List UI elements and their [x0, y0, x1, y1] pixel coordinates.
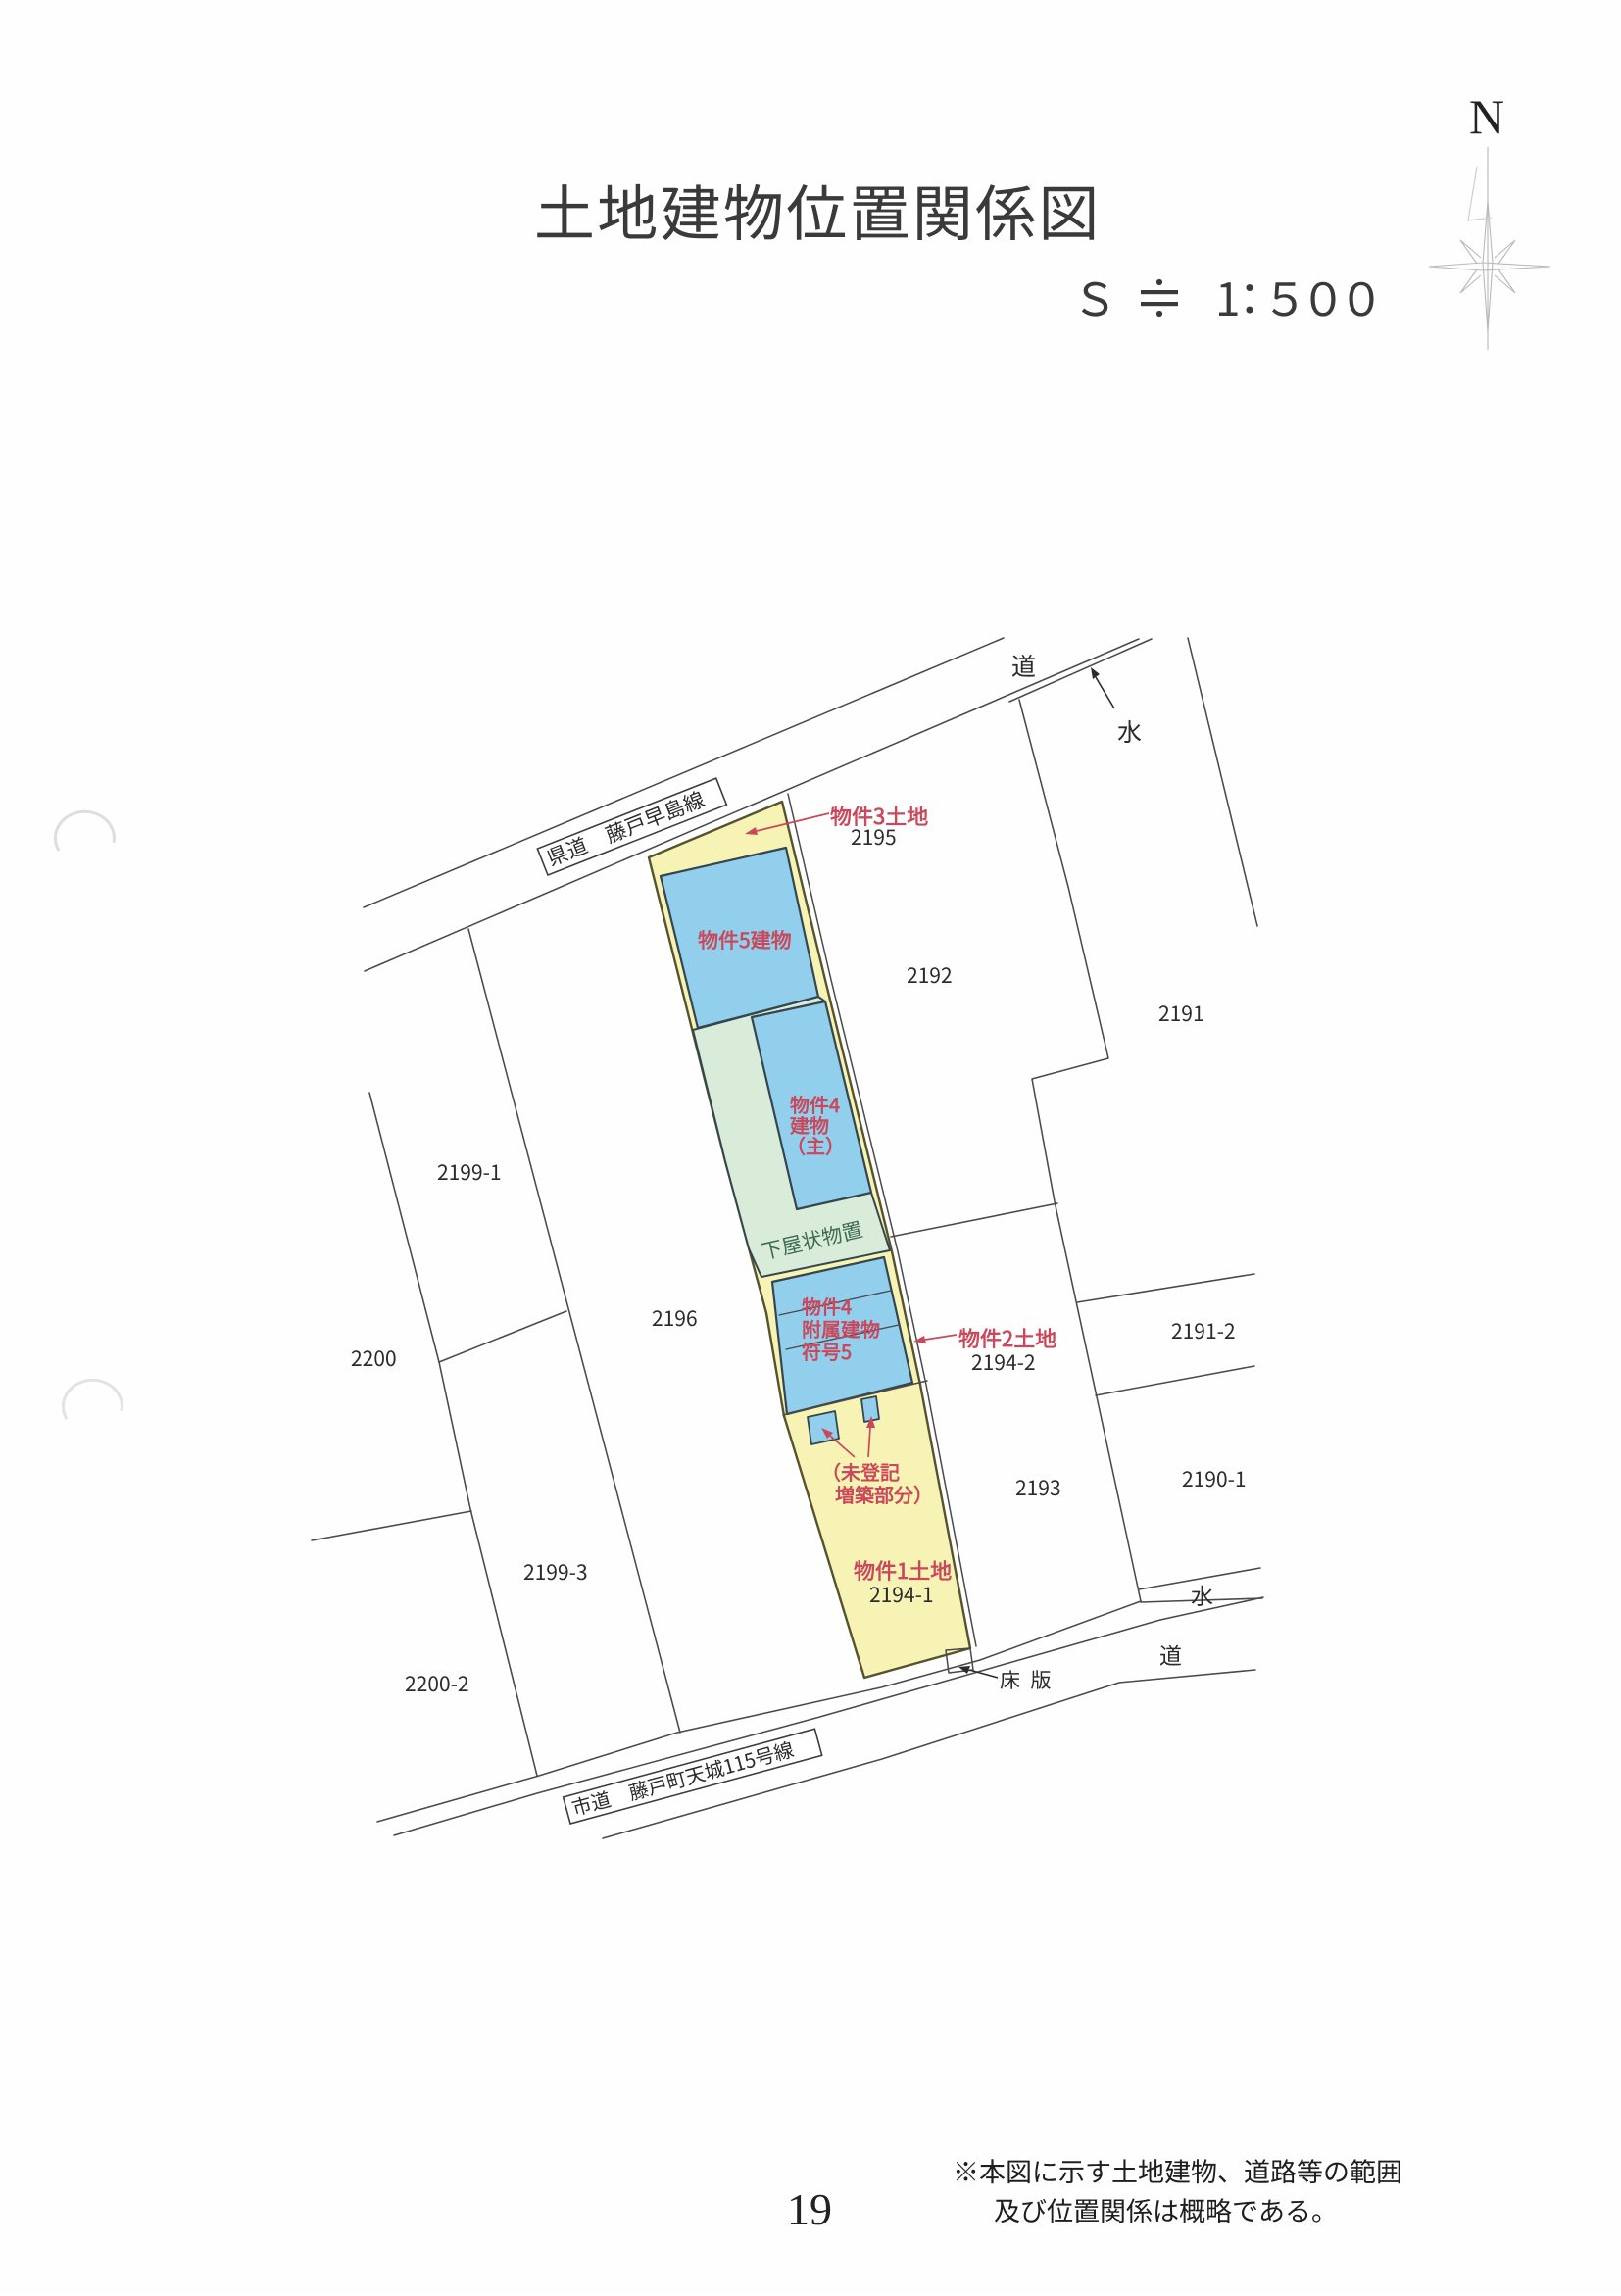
svg-text:19: 19 — [787, 2184, 832, 2234]
svg-text:N: N — [1469, 89, 1504, 144]
